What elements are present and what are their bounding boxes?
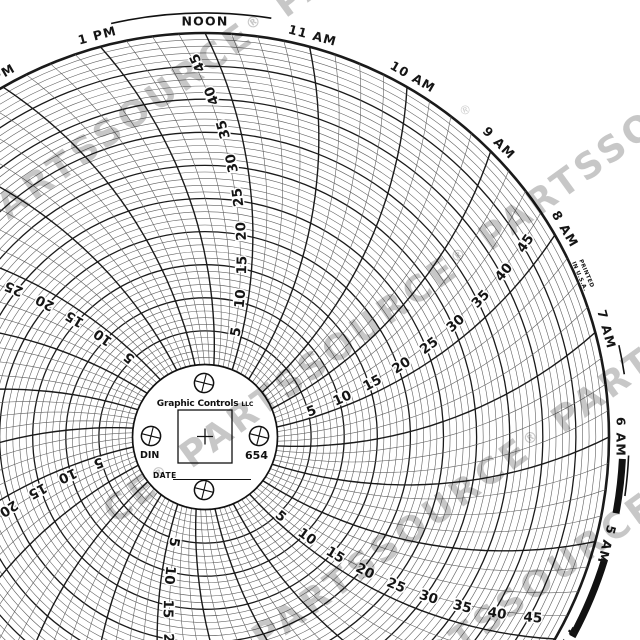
circular-chart-paper: 5101520253035404551015202530354045510152… (0, 0, 640, 640)
chart-number: 654 (245, 449, 268, 462)
scale-number: 5 (227, 326, 244, 338)
scale-number: 15 (360, 372, 384, 395)
scale-number: 10 (295, 525, 320, 549)
scale-number: 15 (160, 599, 176, 618)
scale-number: 25 (417, 334, 442, 358)
scale-number: 30 (222, 152, 241, 174)
hour-time-line (277, 235, 555, 427)
scale-number: 25 (2, 277, 26, 299)
scale-number: 25 (384, 575, 408, 597)
scale-number: 35 (213, 118, 234, 140)
scale-number: 20 (233, 222, 250, 242)
scale-number: 15 (234, 256, 250, 275)
scale-number: 5 (165, 536, 182, 548)
scale-number: 10 (161, 565, 179, 585)
scale-number: 10 (91, 325, 116, 349)
quarter-hour-time-line (0, 213, 164, 377)
scale-number: 30 (417, 587, 440, 608)
scale-number: 20 (0, 496, 21, 520)
hour-time-line (249, 47, 319, 379)
time-label: 6 AM (614, 417, 629, 457)
scale-number: 20 (160, 633, 177, 640)
scale-number: 15 (26, 479, 50, 502)
scale-number: 15 (63, 307, 87, 330)
scale-number: 25 (229, 187, 247, 208)
din-label: DIN (140, 450, 159, 461)
stray-registered-mark: ® (457, 102, 473, 119)
scale-number: 5 (304, 402, 318, 420)
time-label: 9 AM (480, 123, 519, 162)
time-label: 11 AM (287, 22, 339, 49)
scale-number: 5 (91, 453, 105, 471)
product-photo-circular-chart: 5101520253035404551015202530354045510152… (0, 0, 640, 640)
scale-number: 10 (232, 289, 250, 309)
